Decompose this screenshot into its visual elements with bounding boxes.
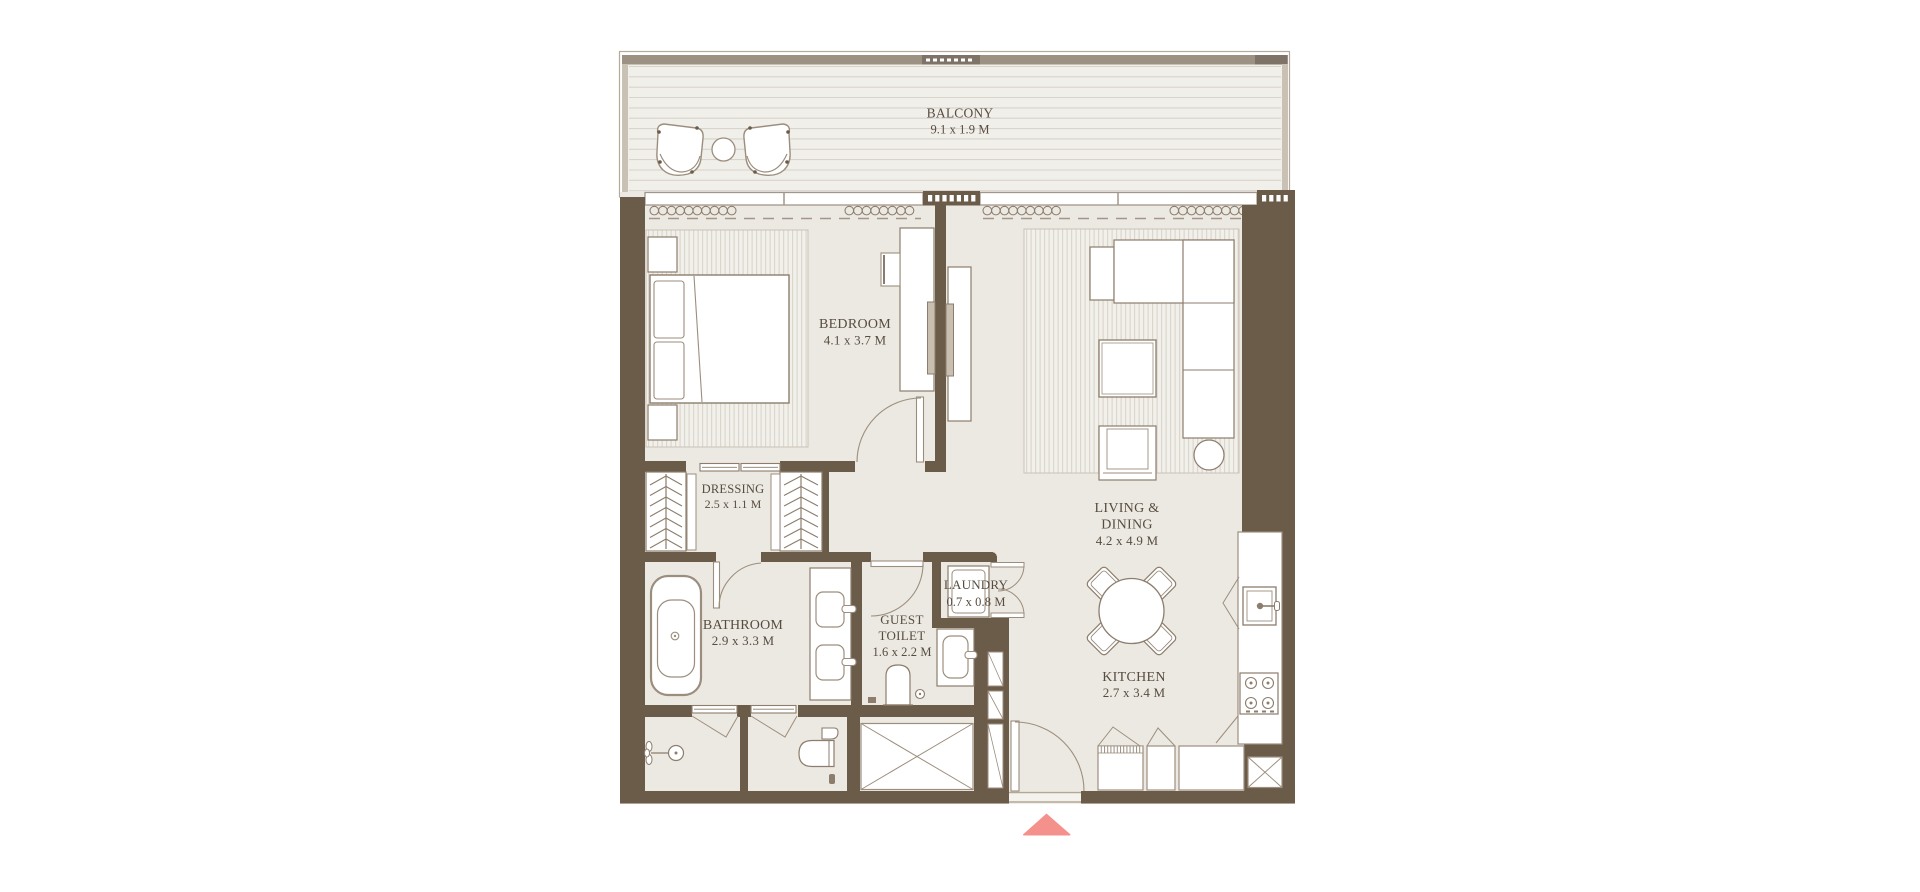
- svg-text:BATHROOM: BATHROOM: [703, 618, 784, 633]
- svg-text:4.2 x 4.9 M: 4.2 x 4.9 M: [1096, 533, 1159, 548]
- svg-text:LIVING &: LIVING &: [1095, 501, 1160, 516]
- svg-text:KITCHEN: KITCHEN: [1102, 670, 1166, 685]
- svg-text:9.1 x 1.9 M: 9.1 x 1.9 M: [930, 123, 989, 137]
- svg-text:DINING: DINING: [1101, 518, 1153, 533]
- svg-text:1.6 x 2.2 M: 1.6 x 2.2 M: [872, 645, 931, 659]
- svg-text:2.9 x 3.3 M: 2.9 x 3.3 M: [712, 633, 775, 648]
- svg-text:TOILET: TOILET: [878, 628, 925, 643]
- svg-text:BALCONY: BALCONY: [927, 106, 994, 121]
- svg-text:2.7 x 3.4 M: 2.7 x 3.4 M: [1103, 685, 1166, 700]
- svg-text:0.7 x 0.8 M: 0.7 x 0.8 M: [946, 595, 1005, 609]
- svg-text:BEDROOM: BEDROOM: [819, 317, 891, 332]
- svg-text:LAUNDRY: LAUNDRY: [944, 577, 1009, 592]
- svg-text:DRESSING: DRESSING: [702, 482, 765, 496]
- svg-text:4.1 x 3.7 M: 4.1 x 3.7 M: [824, 333, 887, 348]
- svg-text:2.5 x 1.1 M: 2.5 x 1.1 M: [705, 497, 762, 511]
